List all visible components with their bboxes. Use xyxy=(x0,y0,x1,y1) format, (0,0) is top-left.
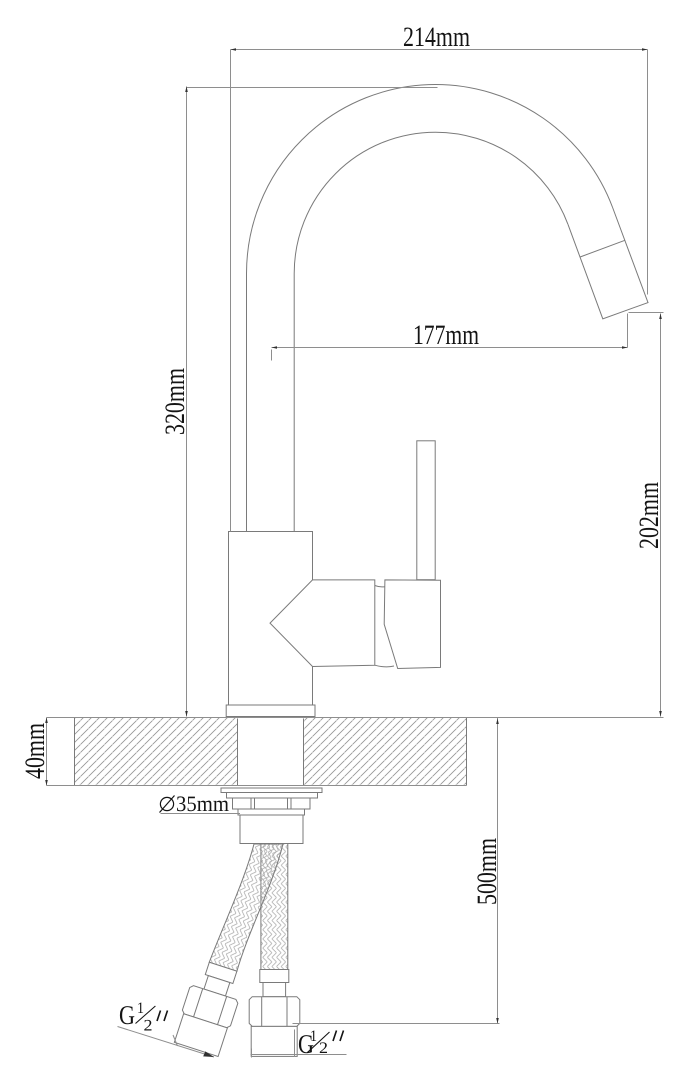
svg-text:202mm: 202mm xyxy=(634,482,665,549)
svg-text:500mm: 500mm xyxy=(472,838,503,905)
svg-text:214mm: 214mm xyxy=(403,22,470,53)
svg-text:40mm: 40mm xyxy=(20,723,51,779)
svg-text:177mm: 177mm xyxy=(413,320,479,351)
svg-text:35mm: 35mm xyxy=(176,791,229,816)
svg-text:1: 1 xyxy=(137,1000,144,1017)
svg-text:2: 2 xyxy=(319,1040,328,1057)
svg-text:G: G xyxy=(119,1000,135,1030)
svg-text:320mm: 320mm xyxy=(160,368,191,435)
svg-text:1: 1 xyxy=(310,1028,317,1045)
svg-text:2: 2 xyxy=(144,1017,153,1034)
